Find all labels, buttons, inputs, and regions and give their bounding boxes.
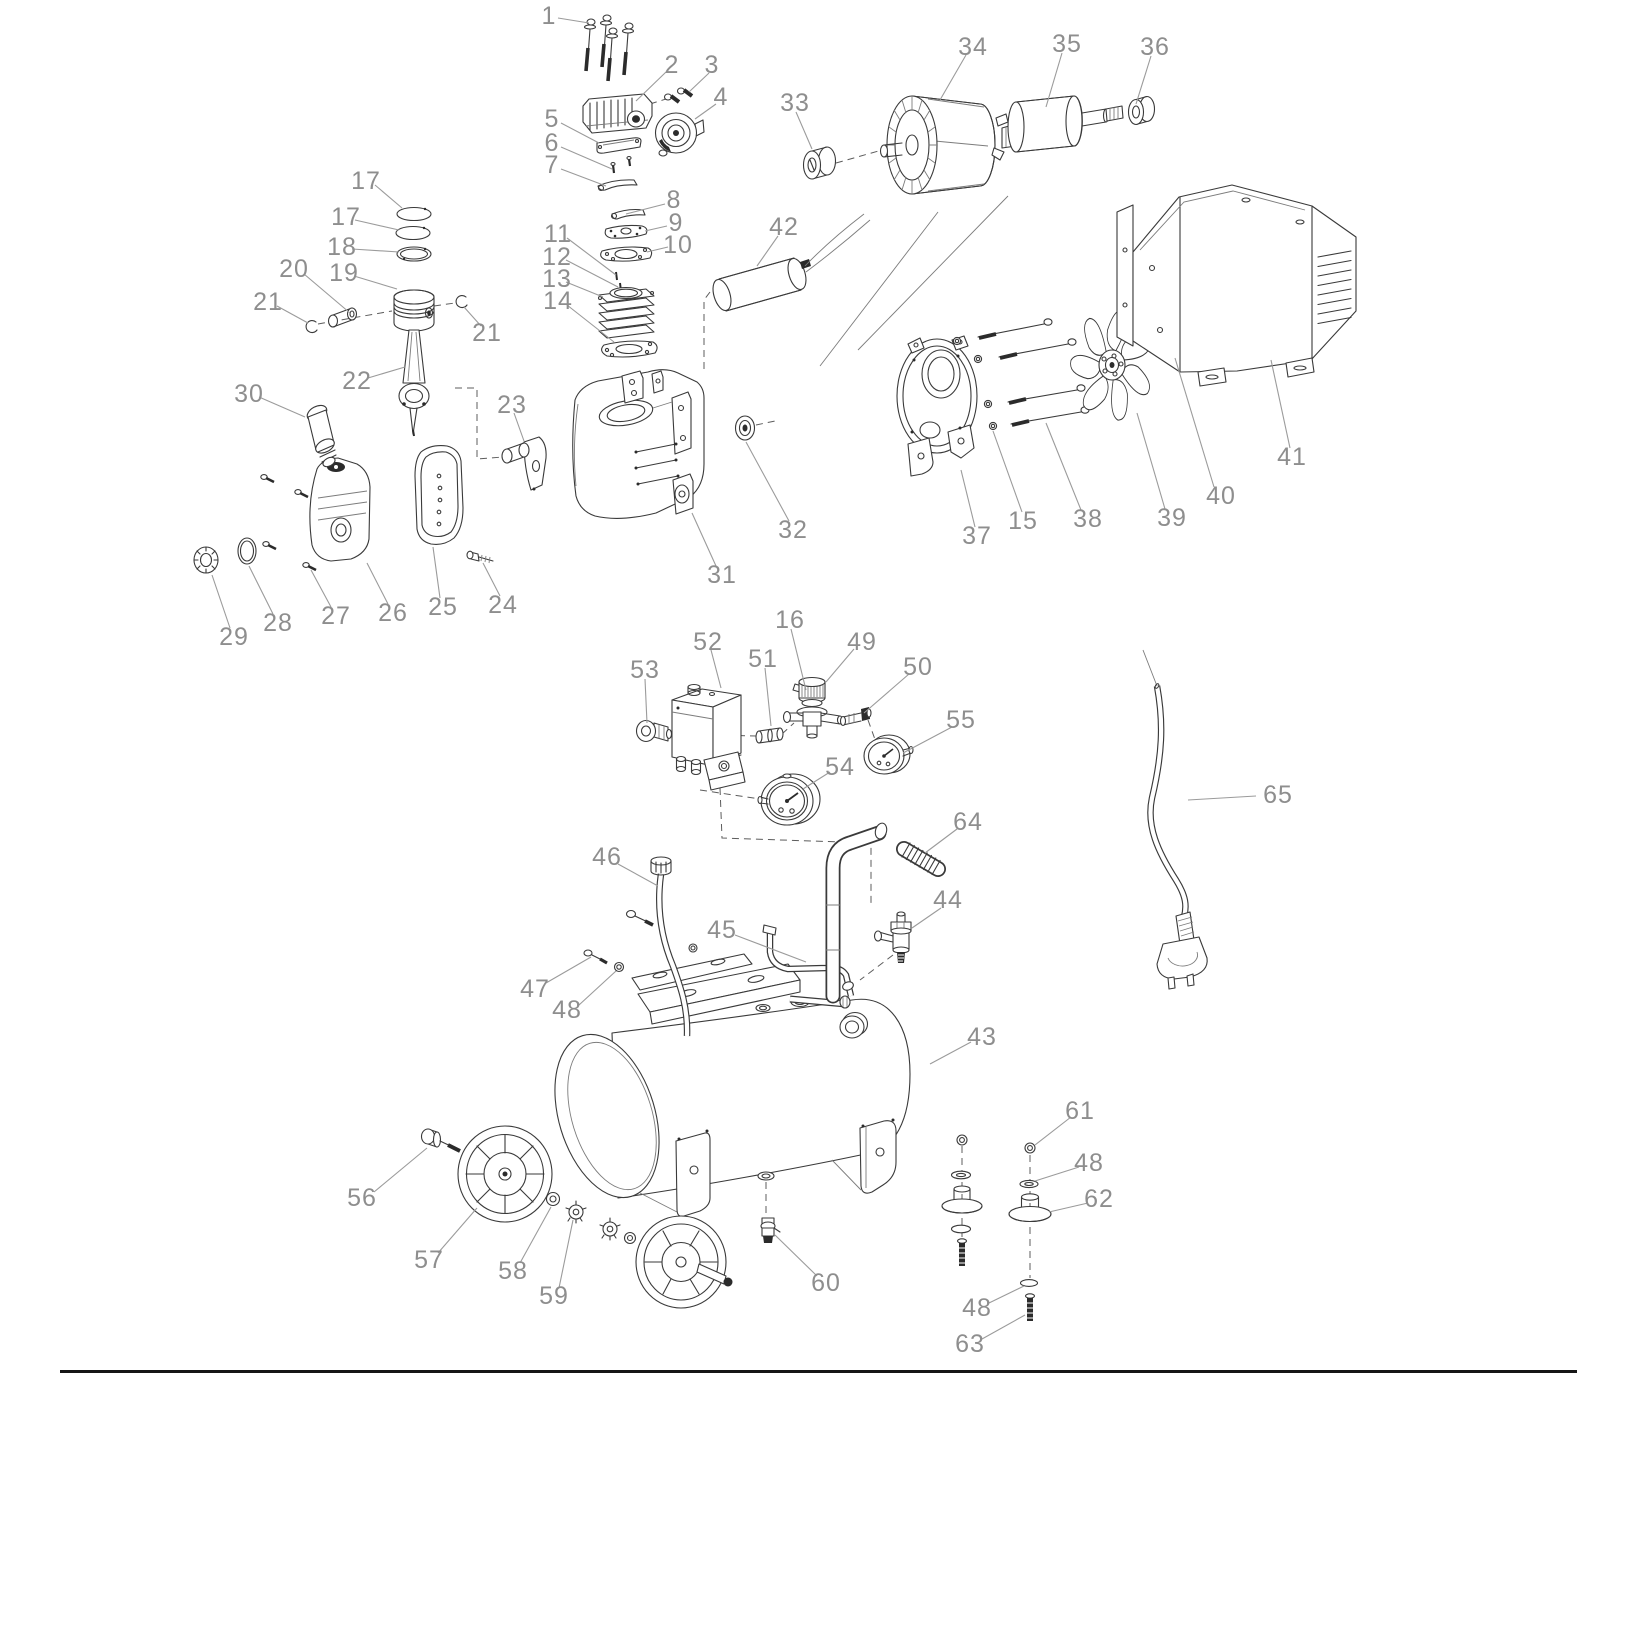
part-circlips: [306, 296, 467, 333]
part-wheel-hardware: [547, 1193, 636, 1244]
callout-4-3: 4: [714, 83, 729, 111]
callout-7-6: 7: [545, 151, 560, 179]
part-air-filter: [656, 113, 705, 156]
part-crankcase-cover: [310, 458, 370, 561]
part-valve-screws: [611, 157, 631, 174]
part-cover-bolts: [261, 475, 316, 570]
callout-46-47: 46: [592, 843, 622, 871]
part-valve-plate: [605, 225, 647, 238]
leader-48-50: [1035, 1167, 1079, 1181]
callout-32-33: 32: [778, 516, 808, 544]
callout-56-59: 56: [347, 1184, 377, 1212]
part-bearing-rear: [1129, 97, 1155, 125]
leader-12-11: [566, 260, 618, 287]
part-cylinder-head: [583, 94, 652, 133]
part-head-bolts: [585, 15, 634, 81]
part-bracket-bolts: [584, 911, 697, 972]
callout-3-2: 3: [705, 51, 720, 79]
callout-34-35: 34: [958, 33, 988, 61]
leader-29-30: [212, 575, 230, 628]
part-outlet-nipple: [841, 707, 872, 726]
part-head-screws: [665, 88, 693, 102]
part-gauge-large: [758, 774, 820, 825]
leader-62-65: [1049, 1203, 1088, 1212]
leader-16-15: [791, 629, 806, 690]
leader-65-68: [1188, 796, 1256, 800]
part-grip-spring: [902, 843, 940, 875]
leader-51-54: [765, 668, 771, 726]
schematic-sheet: 1234567891011121314151617171819202121222…: [0, 0, 1636, 1636]
callout-44-45: 44: [933, 886, 963, 914]
part-elbow-fitting: [637, 721, 672, 742]
leader-55-58: [903, 727, 952, 753]
callout-22-23: 22: [342, 367, 372, 395]
callout-57-60: 57: [414, 1246, 444, 1274]
leader-19-19: [354, 276, 397, 289]
part-gauge-small: [864, 735, 913, 774]
callout-1-0: 1: [542, 2, 557, 30]
callout-60-63: 60: [811, 1269, 841, 1297]
leader-22-23: [368, 367, 405, 378]
part-bearing-front: [804, 147, 836, 179]
part-piston-pin: [329, 308, 357, 327]
leader-8-7: [626, 204, 665, 214]
callout-48-50: 48: [1074, 1149, 1104, 1177]
divider-line: [60, 1370, 1577, 1373]
part-pressure-switch: [672, 685, 745, 791]
callout-17-17: 17: [331, 203, 361, 231]
part-fan-shroud: [1117, 185, 1356, 386]
callout-54-57: 54: [825, 753, 855, 781]
part-piston-rings: [396, 208, 431, 262]
part-wheel-front: [458, 1126, 552, 1222]
part-axle-bolt: [422, 1129, 461, 1151]
callout-65-68: 65: [1263, 781, 1293, 809]
callout-26-27: 26: [378, 599, 408, 627]
leader-30-31: [259, 397, 305, 417]
callout-21-22: 21: [472, 319, 502, 347]
part-breather: [305, 402, 337, 468]
callout-25-26: 25: [428, 593, 458, 621]
leader-32-33: [746, 442, 789, 521]
part-nipple-fitting: [756, 728, 783, 743]
callout-20-20: 20: [279, 255, 309, 283]
callout-16-15: 16: [775, 606, 805, 634]
callout-14-13: 14: [543, 287, 573, 315]
part-drain-valve: [761, 1218, 780, 1243]
leader-34-35: [940, 55, 966, 100]
part-oil-seal: [736, 416, 755, 440]
leader-28-29: [249, 566, 273, 614]
callout-47-48: 47: [520, 975, 550, 1003]
callout-51-54: 51: [748, 645, 778, 673]
callout-59-62: 59: [539, 1282, 569, 1310]
leader-17-17: [355, 220, 399, 230]
callout-19-19: 19: [329, 259, 359, 287]
part-foot-stack-right: [1009, 1143, 1051, 1321]
callout-52-55: 52: [693, 628, 723, 656]
part-cover-gasket: [415, 446, 463, 545]
callout-48-51: 48: [962, 1294, 992, 1322]
leader-56-59: [374, 1148, 427, 1192]
leader-48-49: [579, 971, 616, 1005]
leader-59-62: [559, 1220, 573, 1288]
callout-37-38: 37: [962, 522, 992, 550]
callout-41-42: 41: [1277, 443, 1307, 471]
callout-64-67: 64: [953, 808, 983, 836]
leader-37-38: [961, 470, 975, 527]
callout-45-46: 45: [707, 916, 737, 944]
leader-1-0: [558, 18, 589, 23]
callout-31-32: 31: [707, 561, 737, 589]
exploded-diagram: 1234567891011121314151617171819202121222…: [0, 0, 1636, 1372]
part-head-gasket: [597, 138, 641, 153]
footer: ЗУБР КПМ-320-50. Схема 1-1 (Схема-состав…: [0, 1398, 1636, 1478]
leader-25-26: [433, 547, 440, 598]
callout-40-41: 40: [1206, 482, 1236, 510]
callout-10-9: 10: [663, 231, 693, 259]
callout-55-58: 55: [946, 706, 976, 734]
part-oring: [238, 538, 256, 564]
part-stator: [881, 96, 996, 194]
part-plate-gasket: [601, 247, 652, 261]
callout-42-43: 42: [769, 213, 799, 241]
callout-62-65: 62: [1084, 1185, 1114, 1213]
leader-53-56: [645, 679, 647, 723]
leader-18-18: [352, 249, 399, 252]
part-regulator: [784, 678, 843, 739]
callout-17-16: 17: [351, 167, 381, 195]
callout-58-61: 58: [498, 1257, 528, 1285]
callout-61-64: 61: [1065, 1097, 1095, 1125]
part-cylinder: [599, 288, 655, 339]
part-cover-screw: [467, 551, 493, 563]
part-motor-bolts: [978, 319, 1089, 425]
part-wheel-rear: [636, 1216, 733, 1308]
callout-50-53: 50: [903, 653, 933, 681]
part-dowel-bracket: [502, 437, 546, 491]
leader-33-34: [796, 112, 812, 149]
leader-31-32: [692, 513, 716, 566]
callout-29-30: 29: [219, 623, 249, 651]
callout-28-29: 28: [263, 609, 293, 637]
callout-15-14: 15: [1008, 507, 1038, 535]
callout-63-66: 63: [955, 1330, 985, 1358]
callout-36-37: 36: [1140, 33, 1170, 61]
callout-24-25: 24: [488, 591, 518, 619]
leader-2-1: [636, 72, 666, 101]
callout-49-52: 49: [847, 628, 877, 656]
leader-48-51: [989, 1286, 1024, 1303]
callout-27-28: 27: [321, 602, 351, 630]
leader-38-39: [1046, 423, 1081, 510]
callout-21-21: 21: [253, 288, 283, 316]
callout-18-18: 18: [327, 233, 357, 261]
part-end-bell: [897, 336, 977, 476]
part-oil-cap: [194, 547, 218, 573]
leader-46-47: [618, 864, 658, 886]
callout-2-1: 2: [665, 51, 680, 79]
part-piston: [394, 290, 434, 331]
leader-7-6: [561, 169, 606, 186]
part-tank: [537, 998, 910, 1211]
callout-53-56: 53: [630, 656, 660, 684]
part-rotor: [992, 96, 1123, 160]
callout-23-24: 23: [497, 391, 527, 419]
part-crankcase: [573, 370, 704, 519]
leader-15-14: [993, 431, 1022, 512]
part-power-cord: [1143, 650, 1207, 989]
leader-39-40: [1137, 413, 1165, 509]
callout-43-44: 43: [967, 1023, 997, 1051]
leader-43-44: [930, 1042, 971, 1064]
part-cylinder-gasket: [602, 341, 657, 357]
part-connecting-rod: [399, 330, 429, 436]
callout-35-36: 35: [1052, 30, 1082, 58]
part-foot-stack-left: [942, 1135, 982, 1266]
callout-33-34: 33: [780, 89, 810, 117]
callout-39-40: 39: [1157, 504, 1187, 532]
callout-48-49: 48: [552, 996, 582, 1024]
leader-26-27: [367, 563, 388, 604]
part-handle: [826, 822, 888, 996]
leader-47-48: [546, 957, 591, 983]
callout-38-39: 38: [1073, 505, 1103, 533]
callout-30-31: 30: [234, 380, 264, 408]
